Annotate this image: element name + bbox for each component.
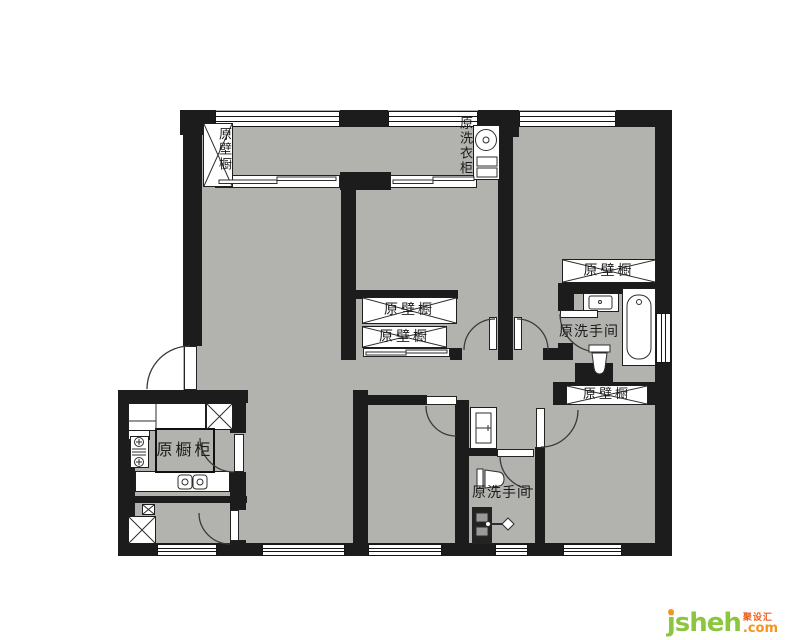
kitchen-stove (130, 436, 149, 468)
wall-bath-west-stub (558, 343, 573, 360)
label-laundry-cabinet: 原洗衣柜 (449, 116, 471, 186)
wall-center-vertical (498, 130, 513, 360)
window-bottom-4 (495, 544, 528, 556)
label-bathroom-small: 原洗手间 (472, 486, 540, 503)
label-closet-southeast: 原壁橱 (566, 385, 648, 405)
small-shaft-box-2 (128, 516, 156, 544)
small-shaft-box-1 (142, 504, 155, 515)
window-bathroom-east (656, 313, 671, 363)
label-closet-middle-upper: 原壁橱 (362, 297, 457, 324)
bath2-dark-cabinet (472, 507, 492, 544)
kitchen-shaft-box (206, 403, 233, 430)
window-bottom-5 (563, 544, 622, 556)
sliding-door-balcony-1 (215, 175, 340, 188)
door-leaf-midbottom (426, 396, 457, 405)
door-leaf-bedroom-se (536, 408, 545, 448)
logo-tld-text: .com (743, 623, 778, 635)
wall-kitchen-divider (135, 496, 247, 503)
logo-brand-text: jsheh (667, 612, 741, 635)
wall-diner-divider (353, 390, 368, 543)
lobby-cabinet (470, 407, 497, 449)
wall-nook-right (450, 348, 462, 360)
door-leaf-bathroom-small (497, 449, 534, 457)
label-closet-northeast: 原壁橱 (562, 259, 656, 283)
floor-plan-canvas: 原壁橱 原洗衣柜 原壁橱 原洗手间 原壁橱 原壁橱 原壁橱 原橱柜 原洗手间 j… (0, 0, 800, 640)
window-top-3 (519, 111, 616, 127)
kitchen-counter-top (128, 403, 206, 431)
window-bottom-3 (368, 544, 442, 556)
sliding-door-closet-nook (363, 348, 450, 357)
logo-j-dot (668, 609, 674, 615)
door-leaf-storage (230, 510, 239, 541)
wall-kitchen-right-2 (230, 472, 246, 510)
wall-ne-stub (558, 283, 574, 311)
laundry-closet-box (473, 125, 500, 180)
wall-toilet-nook (575, 363, 613, 382)
wall-living-divider (341, 188, 356, 360)
kitchen-sink-counter (135, 471, 230, 492)
label-balcony-closet: 原壁橱 (206, 127, 230, 187)
wall-midbottom-north (356, 395, 427, 405)
label-bathroom-main: 原洗手间 (559, 325, 631, 342)
door-leaf-entry (184, 346, 197, 390)
window-bottom-2 (262, 544, 345, 556)
door-leaf-kitchen (234, 434, 244, 472)
label-kitchen-cabinet: 原橱柜 (150, 428, 220, 473)
wall-top-pier (340, 110, 388, 127)
window-bottom-1 (157, 544, 217, 556)
wall-lobby-left (455, 400, 469, 543)
window-top-1 (215, 111, 340, 127)
watermark-logo: jsheh 聚设汇 .com (667, 610, 778, 635)
wall-kitchen-top (118, 390, 248, 403)
wall-left (183, 110, 202, 346)
door-leaf-vestibule-right (514, 317, 522, 350)
door-leaf-vestibule-left (489, 317, 497, 350)
wall-kitchen-right-3 (230, 540, 246, 556)
wall-bath2-north (469, 448, 497, 456)
door-leaf-bathroom-main (560, 310, 598, 318)
label-closet-middle-lower: 原壁橱 (362, 326, 447, 348)
